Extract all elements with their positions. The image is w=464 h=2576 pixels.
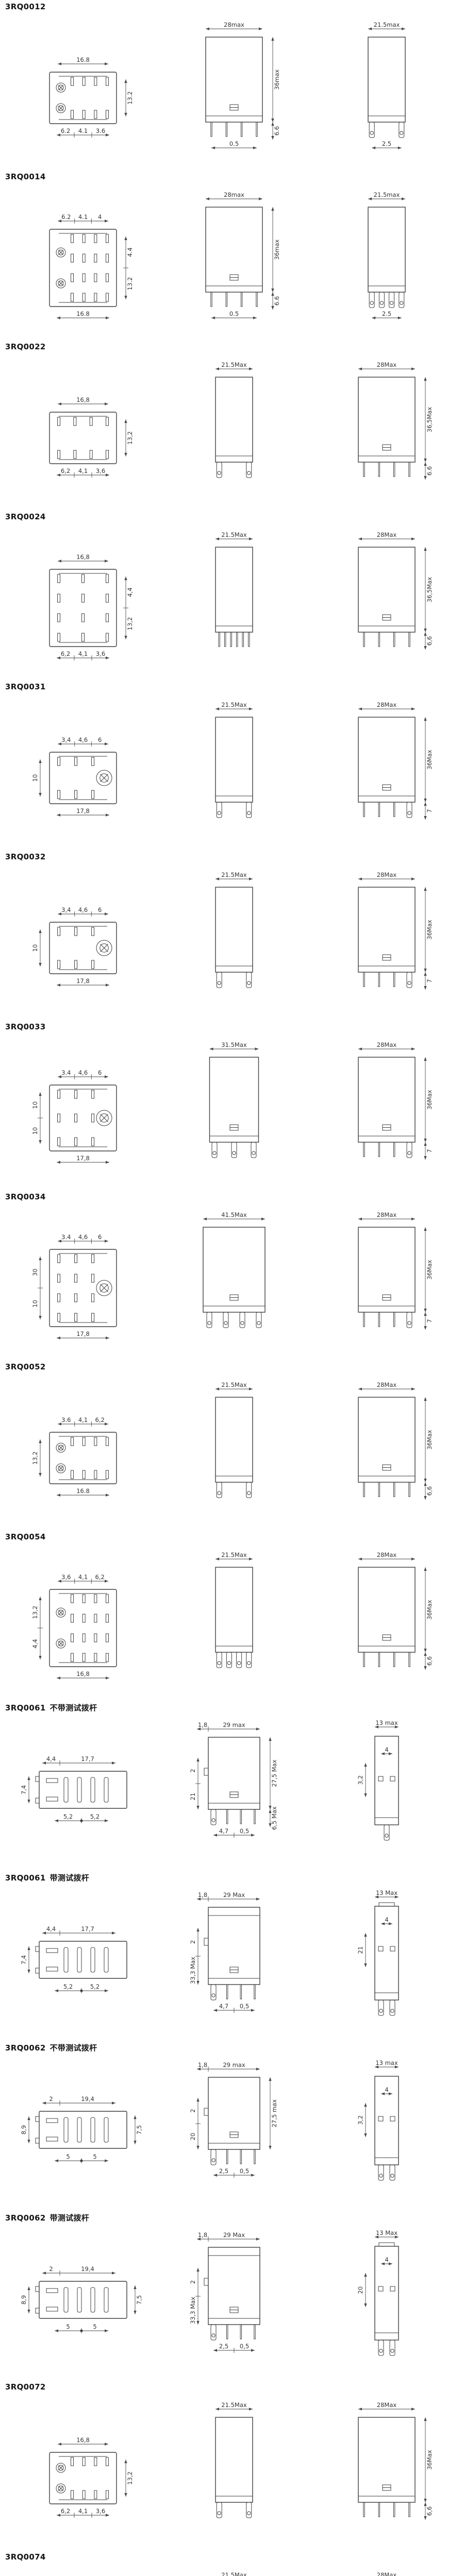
dim-label: 36Max [426,1430,433,1450]
drawing-row: 219,48,97,5551,829 Max233,3 Max2,50,513 … [5,2224,464,2378]
dim-label: 6.6 [426,466,433,476]
side-view-drawing: 13 Max421 [310,1884,463,2038]
dimension-drawing: 21.5Max [158,523,310,678]
part-variant-note: 不带测试拨杆 [50,2043,97,2053]
dimension-drawing: 3,44,6617,810 [5,693,158,848]
dimension-drawing: 28Max36Max7 [310,693,463,848]
relay-body-outline [216,547,253,632]
dim-label: 3,6 [61,1573,71,1581]
socket-body-outline [49,752,117,804]
dimension-drawing: 13 max43,2 [310,1714,463,1868]
outline-view-drawing: 21.5Max [158,2564,310,2576]
dim-label: 4,1 [78,650,88,657]
dim-label: 2 [189,2280,196,2284]
dimension-drawing: 4,417,77,45,25,2 [5,1884,158,2038]
dim-label: 36Max [426,750,433,770]
part-section: 3RQ00543,64,16,216,813,24,421.5Max28Max3… [0,1530,464,1700]
dim-label: 21.5Max [221,701,247,708]
part-number: 3RQ0052 [5,1362,46,1371]
dim-label: 2 [49,2265,53,2273]
dim-label: 21.5Max [221,531,247,538]
dim-label: 4 [385,2256,388,2263]
relay-body-outline [206,207,262,292]
outline-view-drawing: 41.5Max [158,1204,310,1358]
part-section: 3RQ00146.24.1416.84.413.228max36max6.60.… [0,170,464,340]
part-number-heading: 3RQ0074 [5,2552,464,2564]
relay-body-outline [216,2417,253,2502]
dim-label: 5,2 [63,1983,73,1990]
dim-label: 4,1 [78,467,88,474]
part-number-heading: 3RQ0022 [5,342,464,353]
dim-label: 6,6 [426,1486,433,1496]
outline-view-drawing: 28max36max6.60.5 [158,183,310,338]
dim-label: 16,8 [76,1670,90,1677]
dim-label: 6,2 [61,2507,70,2515]
dim-label: 13 max [375,1719,398,1726]
part-number-heading: 3RQ0032 [5,852,464,863]
dimension-drawing: 21.5Max [158,1374,310,1528]
dimension-drawing: 21.5Max [158,353,310,508]
dim-label: 21.5Max [221,2571,247,2576]
socket-top-outline [39,2281,127,2318]
part-section: 3RQ00323,44,6617,81021.5Max28Max36Max7 [0,850,464,1020]
dim-label: 20 [357,2286,364,2294]
relay-body-outline [216,717,253,802]
dim-label: 16,8 [76,2436,90,2444]
dim-label: 29 Max [223,2231,245,2239]
dimension-drawing: 16,86,24,13,64,413,2 [5,2564,158,2576]
socket-body-outline [49,229,117,307]
dimension-drawing: 28Max36Max6,6 [310,1374,463,1528]
latch-tab [204,2108,208,2115]
dimension-drawing: 41.5Max [158,1204,310,1358]
dimension-drawing: 1,829 max27,5 max2202,50,5 [158,2054,310,2208]
part-number: 3RQ0034 [5,1192,46,1201]
dim-label: 21.5Max [221,361,247,368]
dim-label: 13 Max [376,2229,397,2236]
dim-label: 6 [98,1233,102,1241]
outline-view-drawing: 28Max36Max7 [310,693,463,848]
socket-top-outline [39,1941,127,1978]
dimension-drawing: 1,829 max27,5 Max6,5 Max2214,70,5 [158,1714,310,1868]
part-number-heading: 3RQ0014 [5,172,464,183]
part-number: 3RQ0022 [5,342,46,351]
part-number-heading: 3RQ0012 [5,2,464,13]
part-section: 3RQ0062带测试拨杆219,48,97,5551,829 Max233,3 … [0,2210,464,2380]
dim-label: 6,6 [426,2506,433,2516]
relay-body-outline [216,1397,253,1482]
part-number-heading: 3RQ0052 [5,1362,464,1374]
dim-label: 27,5 max [271,2099,278,2128]
dim-label: 21.5max [374,191,400,198]
part-number-heading: 3RQ0034 [5,1192,464,1204]
drawing-row: 3.44,6617,8101031.5Max28Max36Max7 [5,1033,464,1188]
drawing-row: 3.64,16,216.813,221.5Max28Max36Max6,6 [5,1374,464,1528]
dimension-drawing: 28max36max6.60.5 [158,183,310,338]
part-number-heading: 3RQ0062不带测试拨杆 [5,2042,464,2054]
part-number: 3RQ0031 [5,682,46,691]
dim-label: 17,8 [76,807,90,815]
dim-label: 4 [385,2086,388,2093]
pinout-view-drawing: 16,86,24,13,64,413,2 [5,2564,158,2576]
part-section: 3RQ00343.44,6617,8301041.5Max28Max36Max7 [0,1190,464,1360]
socket-body-outline [49,2452,117,2504]
dimension-drawing: 1,829 Max233,3 Max4,70,5 [158,1884,310,2038]
dimension-drawing: 28Max36Max6,6 [310,1544,463,1698]
dim-label: 8,9 [20,2125,27,2134]
latch-tab [204,1768,208,1775]
dimension-drawing: 16.86.24.13.613.2 [5,13,158,168]
outline-view-drawing: 21.5Max [158,523,310,678]
dimension-drawing: 219,48,97,555 [5,2224,158,2378]
dim-label: 1,8 [198,1891,207,1899]
dimension-drawing: 28Max36Max6,6 [310,2394,463,2548]
dim-label: 2.5 [382,140,391,147]
part-number-heading: 3RQ0054 [5,1532,464,1544]
part-section: 3RQ00523.64,16,216.813,221.5Max28Max36Ma… [0,1360,464,1530]
pinout-view-drawing: 16,86,24,13,613,2 [5,353,158,508]
dim-label: 21.5Max [221,1551,247,1558]
dim-label: 3.4 [61,1233,71,1241]
dim-label: 28Max [377,1381,397,1388]
dim-label: 6 [98,736,102,743]
dim-label: 0.5 [229,140,239,147]
dim-label: 36Max [426,1260,433,1280]
drawing-row: 3,64,16,216,813,24,421.5Max28Max36Max6,6 [5,1544,464,1698]
part-section: 3RQ00313,44,6617,81021.5Max28Max36Max7 [0,680,464,850]
dim-label: 7 [426,809,433,812]
dim-label: 13 Max [376,1889,397,1896]
dimension-drawing: 3,64,16,216,813,24,4 [5,1544,158,1698]
part-number: 3RQ0072 [5,2382,46,2392]
relay-body-outline [210,1057,259,1142]
dim-label: 28Max [377,1551,397,1558]
part-number: 3RQ0012 [5,2,46,11]
outline-view-drawing: 21.5Max [158,1374,310,1528]
dim-label: 2.5 [382,310,391,317]
relay-body-outline [358,547,415,632]
dim-label: 5,2 [90,1983,100,1990]
dim-label: 6 [98,906,102,913]
part-section: 3RQ0062不带测试拨杆219,48,97,5551,829 max27,5 … [0,2040,464,2210]
dim-label: 3,4 [61,736,71,743]
dimension-drawing: 3.44,6617,81010 [5,1033,158,1188]
dim-label: 13.2 [126,277,134,291]
dim-label: 36max [273,239,280,260]
relay-body-outline [358,887,415,972]
pinout-view-drawing: 16,86,24,13,613,2 [5,2394,158,2548]
dimension-drawing: 219,48,97,555 [5,2054,158,2208]
dim-label: 29 max [223,2061,245,2069]
relay-body-outline [203,1227,265,1312]
dimension-drawing: 31.5Max [158,1033,310,1188]
relay-body-outline [216,887,253,972]
dimension-drawing: 16,86,24,13,613,2 [5,353,158,508]
outline-view-drawing: 21.5Max [158,693,310,848]
dim-label: 28Max [377,871,397,878]
dim-label: 7 [426,1319,433,1323]
dimension-drawing: 13 Max420 [310,2224,463,2378]
dim-label: 2 [189,1769,196,1772]
dim-label: 6,6 [426,636,433,646]
part-number: 3RQ0014 [5,172,46,181]
latch-tab [204,1938,208,1945]
part-number: 3RQ0033 [5,1022,46,1031]
dim-label: 10 [31,1127,39,1135]
dim-label: 0,5 [240,2003,249,2010]
outline-view-drawing: 21.5Max [158,863,310,1018]
dimension-drawing: 28Max36,5Max6,6 [310,523,463,678]
drawing-row: 219,48,97,5551,829 max27,5 max2202,50,51… [5,2054,464,2208]
dim-label: 17,8 [76,977,90,985]
dim-label: 27,5 Max [271,1759,278,1787]
dim-label: 29 Max [223,1891,245,1899]
dim-label: 2,5 [219,2167,228,2175]
side-view-drawing: 13 Max420 [310,2224,463,2378]
dimension-drawing: 3.64,16,216.813,2 [5,1374,158,1528]
dimension-drawing: 21.5Max [158,1544,310,1698]
relay-body-outline [358,1567,415,1652]
dim-label: 17,7 [81,1755,94,1762]
dim-label: 16.8 [76,56,90,63]
dim-label: 7,4 [20,1785,27,1794]
dim-label: 28Max [377,701,397,708]
pinout-view-drawing: 16.86.24.13.613.2 [5,13,158,168]
dim-label: 21.5Max [221,1381,247,1388]
dim-label: 0,5 [240,2167,249,2175]
dim-label: 4,6 [78,736,88,743]
dim-label: 36max [273,69,280,90]
dim-label: 10 [31,944,39,952]
part-section: 3RQ002416,86,24,13,64,413,221.5Max28Max3… [0,510,464,680]
dim-label: 6.6 [273,296,280,306]
relay-body-outline [358,1057,415,1142]
part-number-heading: 3RQ0061带测试拨杆 [5,1872,464,1884]
dim-label: 28Max [377,1211,397,1218]
drawing-row: 16,86,24,13,613,221.5Max28Max36,5Max6.6 [5,353,464,508]
outline-view-drawing: 21.5Max [158,1544,310,1698]
dim-label: 17,8 [76,1330,90,1337]
socket-top-outline [39,1771,127,1808]
pinout-view-drawing: 219,48,97,555 [5,2054,158,2208]
socket-body-outline [49,412,117,464]
dim-label: 13 max [375,2059,398,2066]
outline-view-drawing: 28Max36Max6,6 [310,1544,463,1698]
dim-label: 36Max [426,1090,433,1110]
part-section: 3RQ0061带测试拨杆4,417,77,45,25,21,829 Max233… [0,1870,464,2040]
drawing-row: 3.44,6617,8301041.5Max28Max36Max7 [5,1204,464,1358]
dim-label: 19,4 [81,2095,94,2103]
pinout-view-drawing: 3,44,6617,810 [5,863,158,1018]
dim-label: 4,4 [126,587,134,597]
part-section: 3RQ00333.44,6617,8101031.5Max28Max36Max7 [0,1020,464,1190]
part-section: 3RQ007216,86,24,13,613,221.5Max28Max36Ma… [0,2380,464,2550]
dimension-drawing: 28Max36Max7 [310,1204,463,1358]
dim-label: 36Max [426,1600,433,1620]
dim-label: 4,1 [78,1416,88,1423]
dim-label: 21 [189,1793,196,1801]
dim-label: 28Max [377,2401,397,2409]
dim-label: 0,5 [240,1827,249,1835]
dimension-drawing: 4,417,77,45,25,2 [5,1714,158,1868]
dim-label: 3,6 [96,2507,105,2515]
dim-label: 6,2 [61,467,70,474]
dim-label: 28Max [377,2571,397,2576]
outline-view-drawing: 28Max36,5Max6.6 [310,353,463,508]
drawing-row: 16.86.24.13.613.228max36max6.60.521.5max… [5,13,464,168]
dim-label: 7,5 [136,2295,143,2304]
relay-body-outline [208,2077,260,2149]
dim-label: 7 [426,1149,433,1153]
dimension-drawing: 21.5Max [158,693,310,848]
dim-label: 4,4 [31,1639,39,1648]
dimension-drawing: 3,44,6617,810 [5,863,158,1018]
outline-view-drawing: 28Max36Max7 [310,863,463,1018]
part-number-heading: 3RQ0031 [5,682,464,693]
dim-label: 4,6 [78,1233,88,1241]
part-number-heading: 3RQ0061不带测试拨杆 [5,1702,464,1714]
dim-label: 2 [49,2095,53,2103]
socket-body-outline [49,1085,117,1151]
dim-label: 20 [189,2133,196,2141]
dim-label: 17,7 [81,1925,94,1933]
dim-label: 2,5 [219,2343,228,2350]
dim-label: 4 [385,1916,388,1923]
dim-label: 4.1 [78,127,88,134]
outline-view-drawing: 31.5Max [158,1033,310,1188]
dim-label: 3,6 [96,467,105,474]
dim-label: 16.8 [76,310,90,317]
relay-body-outline [358,377,415,462]
relay-body-outline [208,1737,260,1809]
dim-label: 19,4 [81,2265,94,2273]
dimension-drawing: 28Max36,5Max6.6 [310,353,463,508]
relay-body-outline [206,37,262,122]
dim-label: 21.5Max [221,2401,247,2409]
dim-label: 29 max [223,1721,245,1728]
dim-label: 5 [66,2323,70,2330]
socket-top-outline [39,2111,127,2148]
part-section: 3RQ002216,86,24,13,613,221.5Max28Max36,5… [0,340,464,510]
outline-view-drawing: 28Max36Max6,6 [310,1374,463,1528]
dim-label: 4 [385,1746,388,1753]
part-number: 3RQ0024 [5,512,46,521]
dim-label: 4,6 [78,906,88,913]
dim-label: 36Max [426,920,433,940]
dim-label: 4,7 [219,1827,228,1835]
outline-view-drawing: 21.5Max [158,2394,310,2548]
dim-label: 13,2 [31,1606,39,1619]
outline-view-drawing: 1,829 max27,5 Max6,5 Max2214,70,5 [158,1714,310,1868]
dim-label: 21 [357,1946,364,1954]
part-number-heading: 3RQ0033 [5,1022,464,1033]
dim-label: 28Max [377,1041,397,1048]
part-number: 3RQ0032 [5,852,46,861]
part-section: 3RQ007416,86,24,13,64,413,221.5Max28Max3… [0,2550,464,2576]
dim-label: 10 [31,1101,39,1109]
dim-label: 36,5Max [426,407,433,433]
part-number: 3RQ0061 [5,1873,46,1883]
dim-label: 36,5Max [426,577,433,603]
dimension-drawing: 13 max43,2 [310,2054,463,2208]
dimension-drawing: 13 Max421 [310,1884,463,2038]
socket-body-outline [49,1432,117,1484]
part-number: 3RQ0062 [5,2213,46,2223]
pinout-view-drawing: 3,64,16,216,813,24,4 [5,1544,158,1698]
socket-body-outline [49,1589,117,1667]
outline-view-drawing: 1,829 max27,5 max2202,50,5 [158,2054,310,2208]
dim-label: 8,9 [20,2295,27,2304]
dimension-drawing: 6.24.1416.84.413.2 [5,183,158,338]
dim-label: 6,2 [61,650,70,657]
dim-label: 21.5max [374,21,400,28]
drawing-row: 3,44,6617,81021.5Max28Max36Max7 [5,693,464,848]
outline-view-drawing: 1,829 Max233,3 Max4,70,5 [158,1884,310,2038]
pinout-view-drawing: 6.24.1416.84.413.2 [5,183,158,338]
drawing-row: 16,86,24,13,613,221.5Max28Max36Max6,6 [5,2394,464,2548]
dim-label: 7,5 [136,2125,143,2134]
pinout-view-drawing: 3.44,6617,81010 [5,1033,158,1188]
side-view-drawing: 13 max43,2 [310,1714,463,1868]
pinout-view-drawing: 3,44,6617,810 [5,693,158,848]
dim-label: 4.4 [126,247,134,257]
part-section: 3RQ001216.86.24.13.613.228max36max6.60.5… [0,0,464,170]
dim-label: 10 [31,774,39,782]
dim-label: 6.2 [61,213,71,221]
dim-label: 13,2 [31,1451,39,1465]
dim-label: 16.8 [76,1487,90,1495]
dimension-drawing: 21.5Max [158,2394,310,2548]
relay-body-outline [216,1567,253,1652]
part-number-heading: 3RQ0072 [5,2382,464,2394]
dim-label: 36Max [426,2450,433,2470]
dim-label: 3.6 [61,1416,71,1423]
dim-label: 3,2 [357,2115,364,2125]
dim-label: 13,2 [126,2471,134,2485]
part-variant-note: 不带测试拨杆 [50,1703,97,1713]
dim-label: 17,8 [76,1155,90,1162]
relay-body-outline [358,2417,415,2502]
latch-tab [204,2278,208,2285]
dimension-drawing: 21.5Max [158,863,310,1018]
dimension-drawing: 16,86,24,13,64,413,2 [5,523,158,678]
relay-body-outline [358,1227,415,1312]
part-variant-note: 带测试拨杆 [50,2213,90,2223]
dim-label: 28Max [377,361,397,368]
dim-label: 33,3 Max [189,1957,196,1984]
dim-label: 21.5Max [221,871,247,878]
dim-label: 7 [426,979,433,982]
outline-view-drawing: 21.5Max [158,353,310,508]
relay-body-outline [216,377,253,462]
dim-label: 4,4 [46,1755,56,1762]
dim-label: 4,1 [78,1573,88,1581]
relay-body-outline [368,37,405,122]
dim-label: 13.2 [126,91,134,105]
pinout-view-drawing: 4,417,77,45,25,2 [5,1714,158,1868]
dim-label: 4,4 [46,1925,56,1933]
dim-label: 5 [93,2323,96,2330]
dim-label: 2 [189,1940,196,1944]
dim-label: 6,5 Max [271,1806,278,1830]
part-number: 3RQ0062 [5,2043,46,2053]
dim-label: 1,8 [198,2061,207,2069]
dim-label: 16,8 [76,396,90,403]
datasheet-page: 3RQ001216.86.24.13.613.228max36max6.60.5… [0,0,464,2576]
drawing-row: 16,86,24,13,64,413,221.5Max28Max36Max6,6 [5,2564,464,2576]
pinout-view-drawing: 16,86,24,13,64,413,2 [5,523,158,678]
dim-label: 33,3 Max [189,2297,196,2324]
